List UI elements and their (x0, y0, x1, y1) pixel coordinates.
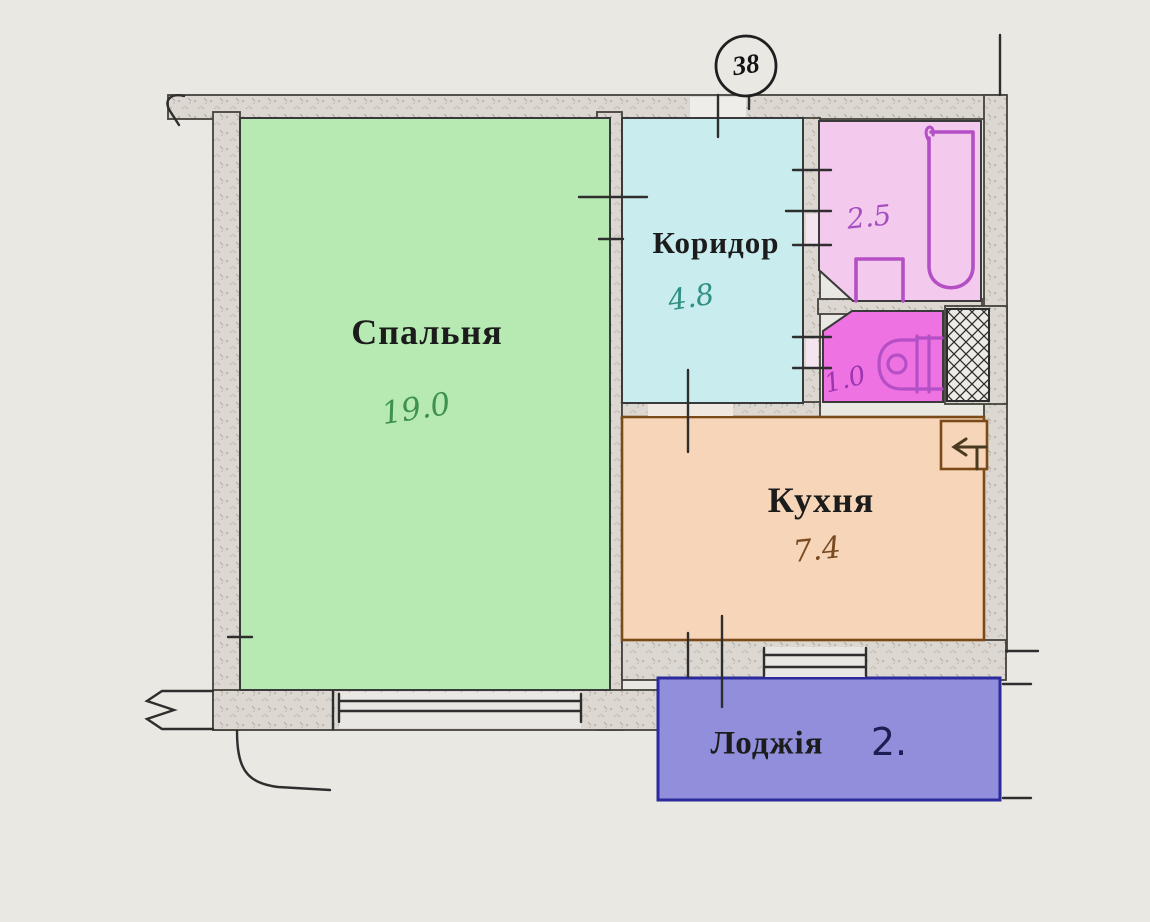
toilet-door-opening (806, 339, 818, 367)
loggia-room (658, 678, 1000, 800)
kitchen-door-opening (648, 404, 733, 416)
bedroom-label: Спальня (351, 311, 503, 353)
loggia-area-value: 2. (871, 720, 907, 764)
kitchen-room (622, 417, 984, 640)
kitchen-label: Кухня (768, 479, 874, 521)
corridor-label: Коридор (653, 225, 780, 261)
floor-plan: 38 Спальня 19.0 Коридор 4.8 2.5 1.0 Кухн… (0, 0, 1150, 922)
kitchen-window-opening (764, 647, 866, 677)
bathroom-area-value: 2.5 (845, 198, 893, 235)
vent-box (941, 421, 987, 469)
vent-shaft-hatch-icon (947, 309, 989, 401)
bathroom-door-opening (806, 214, 818, 244)
wall-break-zigzag (147, 691, 213, 729)
floor-plan-drawing (0, 0, 1150, 922)
kitchen-vent-box (941, 421, 987, 469)
loggia-label: Лоджія (711, 726, 824, 763)
wall-top (168, 95, 1006, 119)
unit-number: 38 (730, 48, 761, 82)
kitchen-area-value: 7.4 (791, 530, 842, 570)
bottom-left-hook-line (237, 731, 330, 790)
loggia-end-ticks (1003, 651, 1038, 798)
bathroom-room (819, 121, 981, 301)
corridor-area-value: 4.8 (666, 277, 717, 318)
